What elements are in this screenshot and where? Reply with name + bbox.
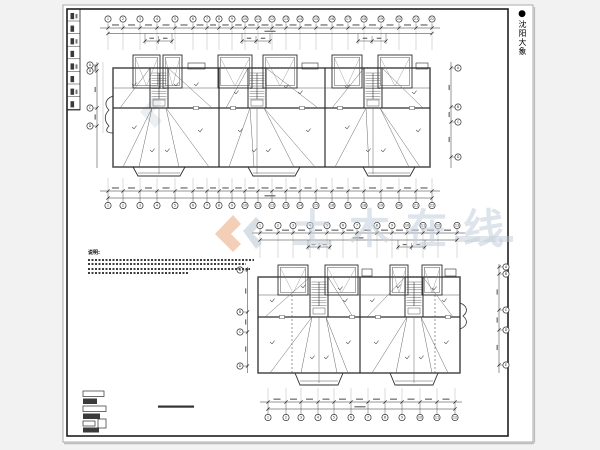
svg-text:9: 9	[231, 204, 233, 208]
svg-text:D: D	[457, 155, 460, 159]
svg-text:5: 5	[174, 17, 176, 21]
notes-block: 说明:	[88, 249, 260, 277]
cad-sheet-viewport: 1234567891011121314151617181920212212345…	[0, 0, 600, 450]
side-label-dot-icon: ●	[517, 9, 527, 20]
svg-text:4: 4	[156, 204, 158, 208]
svg-text:D: D	[239, 364, 242, 368]
svg-text:12: 12	[453, 416, 457, 420]
svg-text:11: 11	[256, 17, 260, 21]
svg-text:8: 8	[384, 416, 386, 420]
svg-text:13: 13	[284, 204, 288, 208]
svg-text:5: 5	[333, 416, 335, 420]
svg-text:14: 14	[298, 204, 302, 208]
notes-heading: 说明:	[88, 249, 260, 256]
svg-text:11: 11	[421, 224, 425, 228]
svg-text:11: 11	[435, 416, 439, 420]
svg-text:7: 7	[206, 204, 208, 208]
svg-text:6: 6	[192, 204, 194, 208]
svg-text:21: 21	[414, 17, 418, 21]
svg-text:17: 17	[346, 17, 350, 21]
svg-text:12: 12	[436, 224, 440, 228]
svg-text:3: 3	[300, 416, 302, 420]
notes-line	[88, 268, 250, 270]
cad-drawing-canvas: 1234567891011121314151617181920212212345…	[0, 0, 600, 450]
notes-line	[88, 259, 254, 261]
svg-text:22: 22	[430, 204, 434, 208]
svg-text:8: 8	[376, 224, 378, 228]
svg-text:4: 4	[317, 416, 319, 420]
svg-text:7: 7	[356, 224, 358, 228]
svg-text:13: 13	[455, 224, 459, 228]
svg-text:1: 1	[107, 17, 109, 21]
svg-text:20: 20	[397, 204, 401, 208]
svg-text:6: 6	[192, 17, 194, 21]
svg-text:19: 19	[379, 204, 383, 208]
svg-text:9: 9	[401, 416, 403, 420]
svg-text:7: 7	[206, 17, 208, 21]
svg-text:14: 14	[298, 17, 302, 21]
svg-text:13: 13	[284, 17, 288, 21]
svg-text:8: 8	[218, 17, 220, 21]
svg-text:18: 18	[362, 204, 366, 208]
svg-text:4: 4	[156, 17, 158, 21]
svg-text:19: 19	[379, 17, 383, 21]
svg-text:9: 9	[231, 17, 233, 21]
svg-text:5: 5	[174, 204, 176, 208]
svg-text:12: 12	[270, 17, 274, 21]
svg-text:2: 2	[277, 224, 279, 228]
svg-text:3: 3	[139, 204, 141, 208]
svg-text:3: 3	[139, 17, 141, 21]
svg-text:11: 11	[256, 204, 260, 208]
svg-text:D: D	[505, 328, 508, 332]
svg-text:1: 1	[107, 204, 109, 208]
svg-text:18: 18	[362, 17, 366, 21]
notes-line	[88, 272, 188, 274]
svg-text:3: 3	[292, 224, 294, 228]
svg-text:10: 10	[405, 224, 409, 228]
svg-text:16: 16	[330, 17, 334, 21]
svg-text:21: 21	[414, 204, 418, 208]
notes-line	[88, 263, 246, 265]
svg-text:20: 20	[397, 17, 401, 21]
svg-text:2: 2	[122, 204, 124, 208]
svg-text:12: 12	[270, 204, 274, 208]
svg-text:1: 1	[259, 224, 261, 228]
scale-bar	[158, 406, 194, 408]
svg-text:2: 2	[122, 17, 124, 21]
svg-text:8: 8	[218, 204, 220, 208]
svg-text:10: 10	[418, 416, 422, 420]
svg-text:17: 17	[346, 204, 350, 208]
svg-text:1: 1	[267, 416, 269, 420]
svg-text:10: 10	[243, 17, 247, 21]
svg-text:15: 15	[314, 204, 318, 208]
svg-text:D: D	[89, 124, 92, 128]
svg-text:16: 16	[330, 204, 334, 208]
svg-text:15: 15	[314, 17, 318, 21]
svg-text:5: 5	[326, 224, 328, 228]
side-label-text: 沈阳大象	[518, 20, 527, 56]
sheet-frame	[63, 5, 535, 444]
svg-text:E: E	[505, 363, 507, 367]
svg-text:6: 6	[342, 224, 344, 228]
svg-text:22: 22	[430, 17, 434, 21]
sheet-side-label: ●沈阳大象	[516, 9, 528, 56]
svg-text:2: 2	[285, 416, 287, 420]
svg-text:7: 7	[367, 416, 369, 420]
svg-text:9: 9	[391, 224, 393, 228]
svg-text:10: 10	[243, 204, 247, 208]
svg-text:6: 6	[350, 416, 352, 420]
svg-text:4: 4	[309, 224, 311, 228]
